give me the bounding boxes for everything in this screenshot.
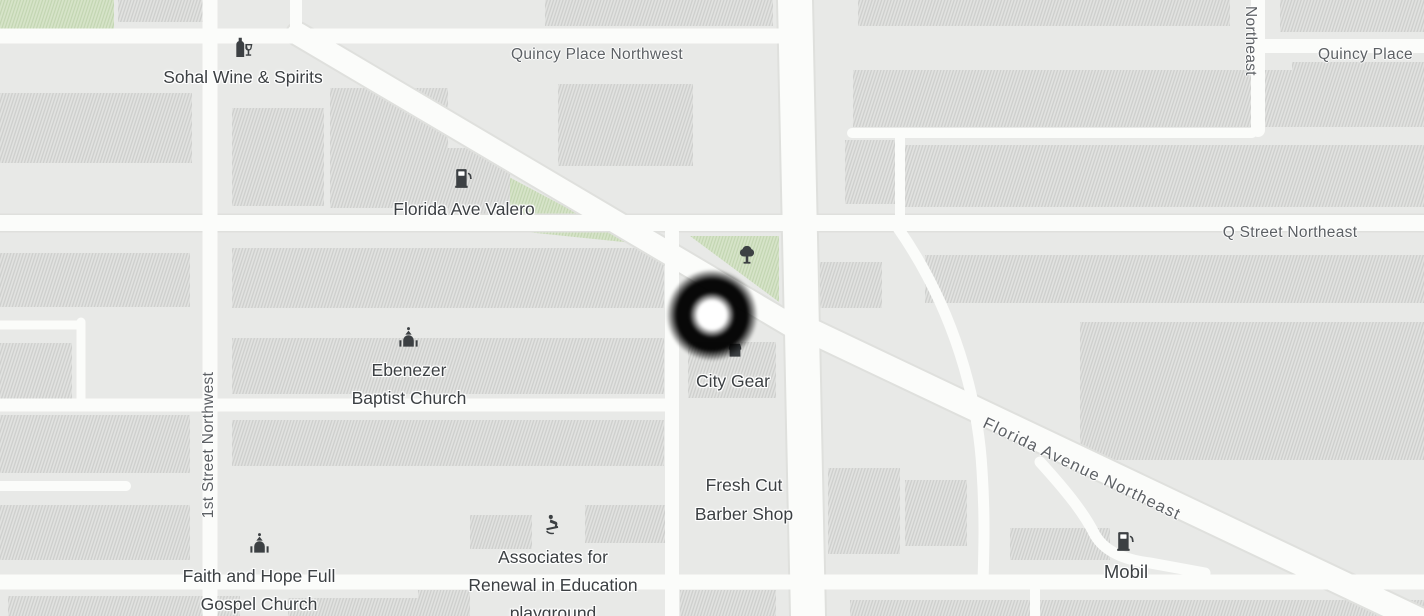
wine-icon[interactable] bbox=[229, 35, 256, 62]
church-icon-faith[interactable] bbox=[246, 531, 273, 558]
playground-icon[interactable] bbox=[540, 512, 567, 539]
tree-icon bbox=[734, 243, 760, 269]
poi-label-fresh-cut-barber-shop[interactable]: Fresh CutBarber Shop bbox=[644, 471, 844, 529]
street-label-quincy-place-northeast: Quincy Place bbox=[1318, 45, 1424, 65]
poi-label-line: playground bbox=[510, 603, 597, 616]
map-canvas[interactable]: Quincy Place Northwest Quincy Place Nort… bbox=[0, 0, 1424, 616]
street-label-1st-street-northwest: 1st Street Northwest bbox=[199, 355, 219, 535]
street-label-quincy-place-northwest: Quincy Place Northwest bbox=[470, 45, 724, 65]
poi-label-ebenezer-baptist-church[interactable]: EbenezerBaptist Church bbox=[294, 356, 524, 412]
gas-pump-icon-valero[interactable] bbox=[451, 166, 476, 191]
poi-label-line: Barber Shop bbox=[695, 504, 793, 524]
poi-label-city-gear[interactable]: City Gear bbox=[653, 370, 813, 392]
poi-label-sohal-wine-spirits[interactable]: Sohal Wine & Spirits bbox=[110, 66, 376, 88]
poi-label-faith-and-hope-full-gospel-church[interactable]: Faith and Hope FullGospel Church bbox=[124, 562, 394, 616]
poi-label-florida-ave-valero[interactable]: Florida Ave Valero bbox=[344, 198, 584, 220]
poi-label-line: Gospel Church bbox=[201, 594, 318, 614]
poi-label-line: Renewal in Education bbox=[468, 575, 637, 595]
church-icon-ebenezer[interactable] bbox=[395, 325, 422, 352]
poi-label-line: Associates for bbox=[498, 547, 608, 567]
poi-label-mobil[interactable]: Mobil bbox=[1056, 560, 1196, 584]
poi-label-associates-for-renewal-in-education-playground[interactable]: Associates forRenewal in Educationplaygr… bbox=[403, 543, 703, 616]
poi-label-line: Baptist Church bbox=[352, 388, 467, 408]
cursor-ring-marker bbox=[664, 267, 760, 363]
street-label-q-street-northeast: Q Street Northeast bbox=[1170, 223, 1410, 243]
poi-label-line: Faith and Hope Full bbox=[183, 566, 336, 586]
poi-label-line: Ebenezer bbox=[372, 360, 447, 380]
gas-pump-icon-mobil[interactable] bbox=[1113, 529, 1138, 554]
poi-label-line: Fresh Cut bbox=[706, 475, 783, 495]
street-label-northeast-vertical: Northeast bbox=[1240, 0, 1260, 96]
